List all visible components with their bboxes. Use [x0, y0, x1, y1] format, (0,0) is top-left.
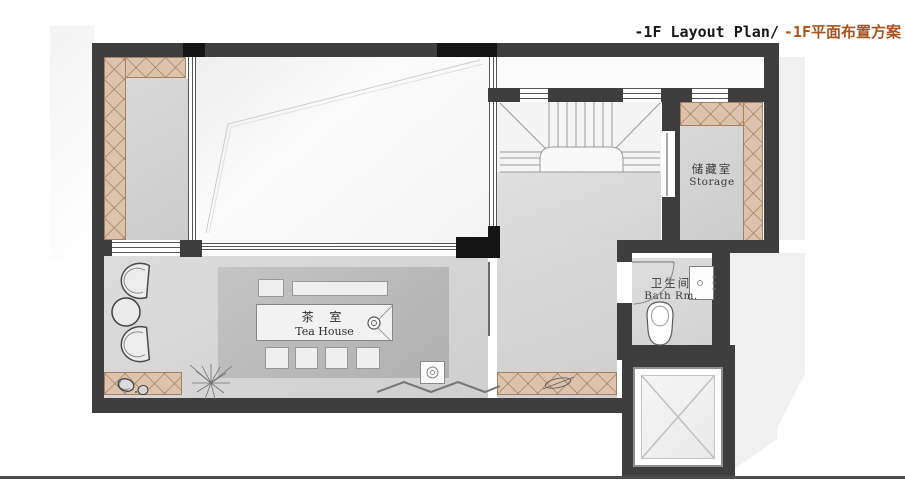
round-side-table: [112, 298, 140, 326]
brazier-icon: [427, 367, 438, 378]
page-title-en: -1F Layout Plan/: [634, 23, 779, 41]
elevator-x-icon: [642, 376, 714, 458]
page-title-zh: -1F平面布置方案: [784, 23, 901, 41]
page-title: -1F Layout Plan/-1F平面布置方案: [634, 21, 901, 42]
toilet-icon: [647, 302, 673, 345]
void-slope-lines: [206, 60, 483, 233]
decor-kettles: [117, 377, 149, 395]
sink-faucet-icon: [698, 277, 717, 289]
bathroom-door-arc: [632, 262, 674, 304]
plan-linework: [0, 0, 905, 484]
screen-zigzag: [377, 382, 500, 392]
corridor-decor: [543, 376, 574, 390]
stairs: [500, 102, 660, 172]
page-bottom-rule: [0, 476, 905, 479]
lounge-chair-north: [120, 262, 150, 299]
plant-icon: [190, 364, 232, 399]
floor-plan-page: 茶 室 Tea House 储藏室 Storage 卫生间 Bath Rm.: [0, 0, 905, 484]
lounge-chair-south: [120, 326, 150, 363]
teapot-icon: [368, 305, 393, 341]
